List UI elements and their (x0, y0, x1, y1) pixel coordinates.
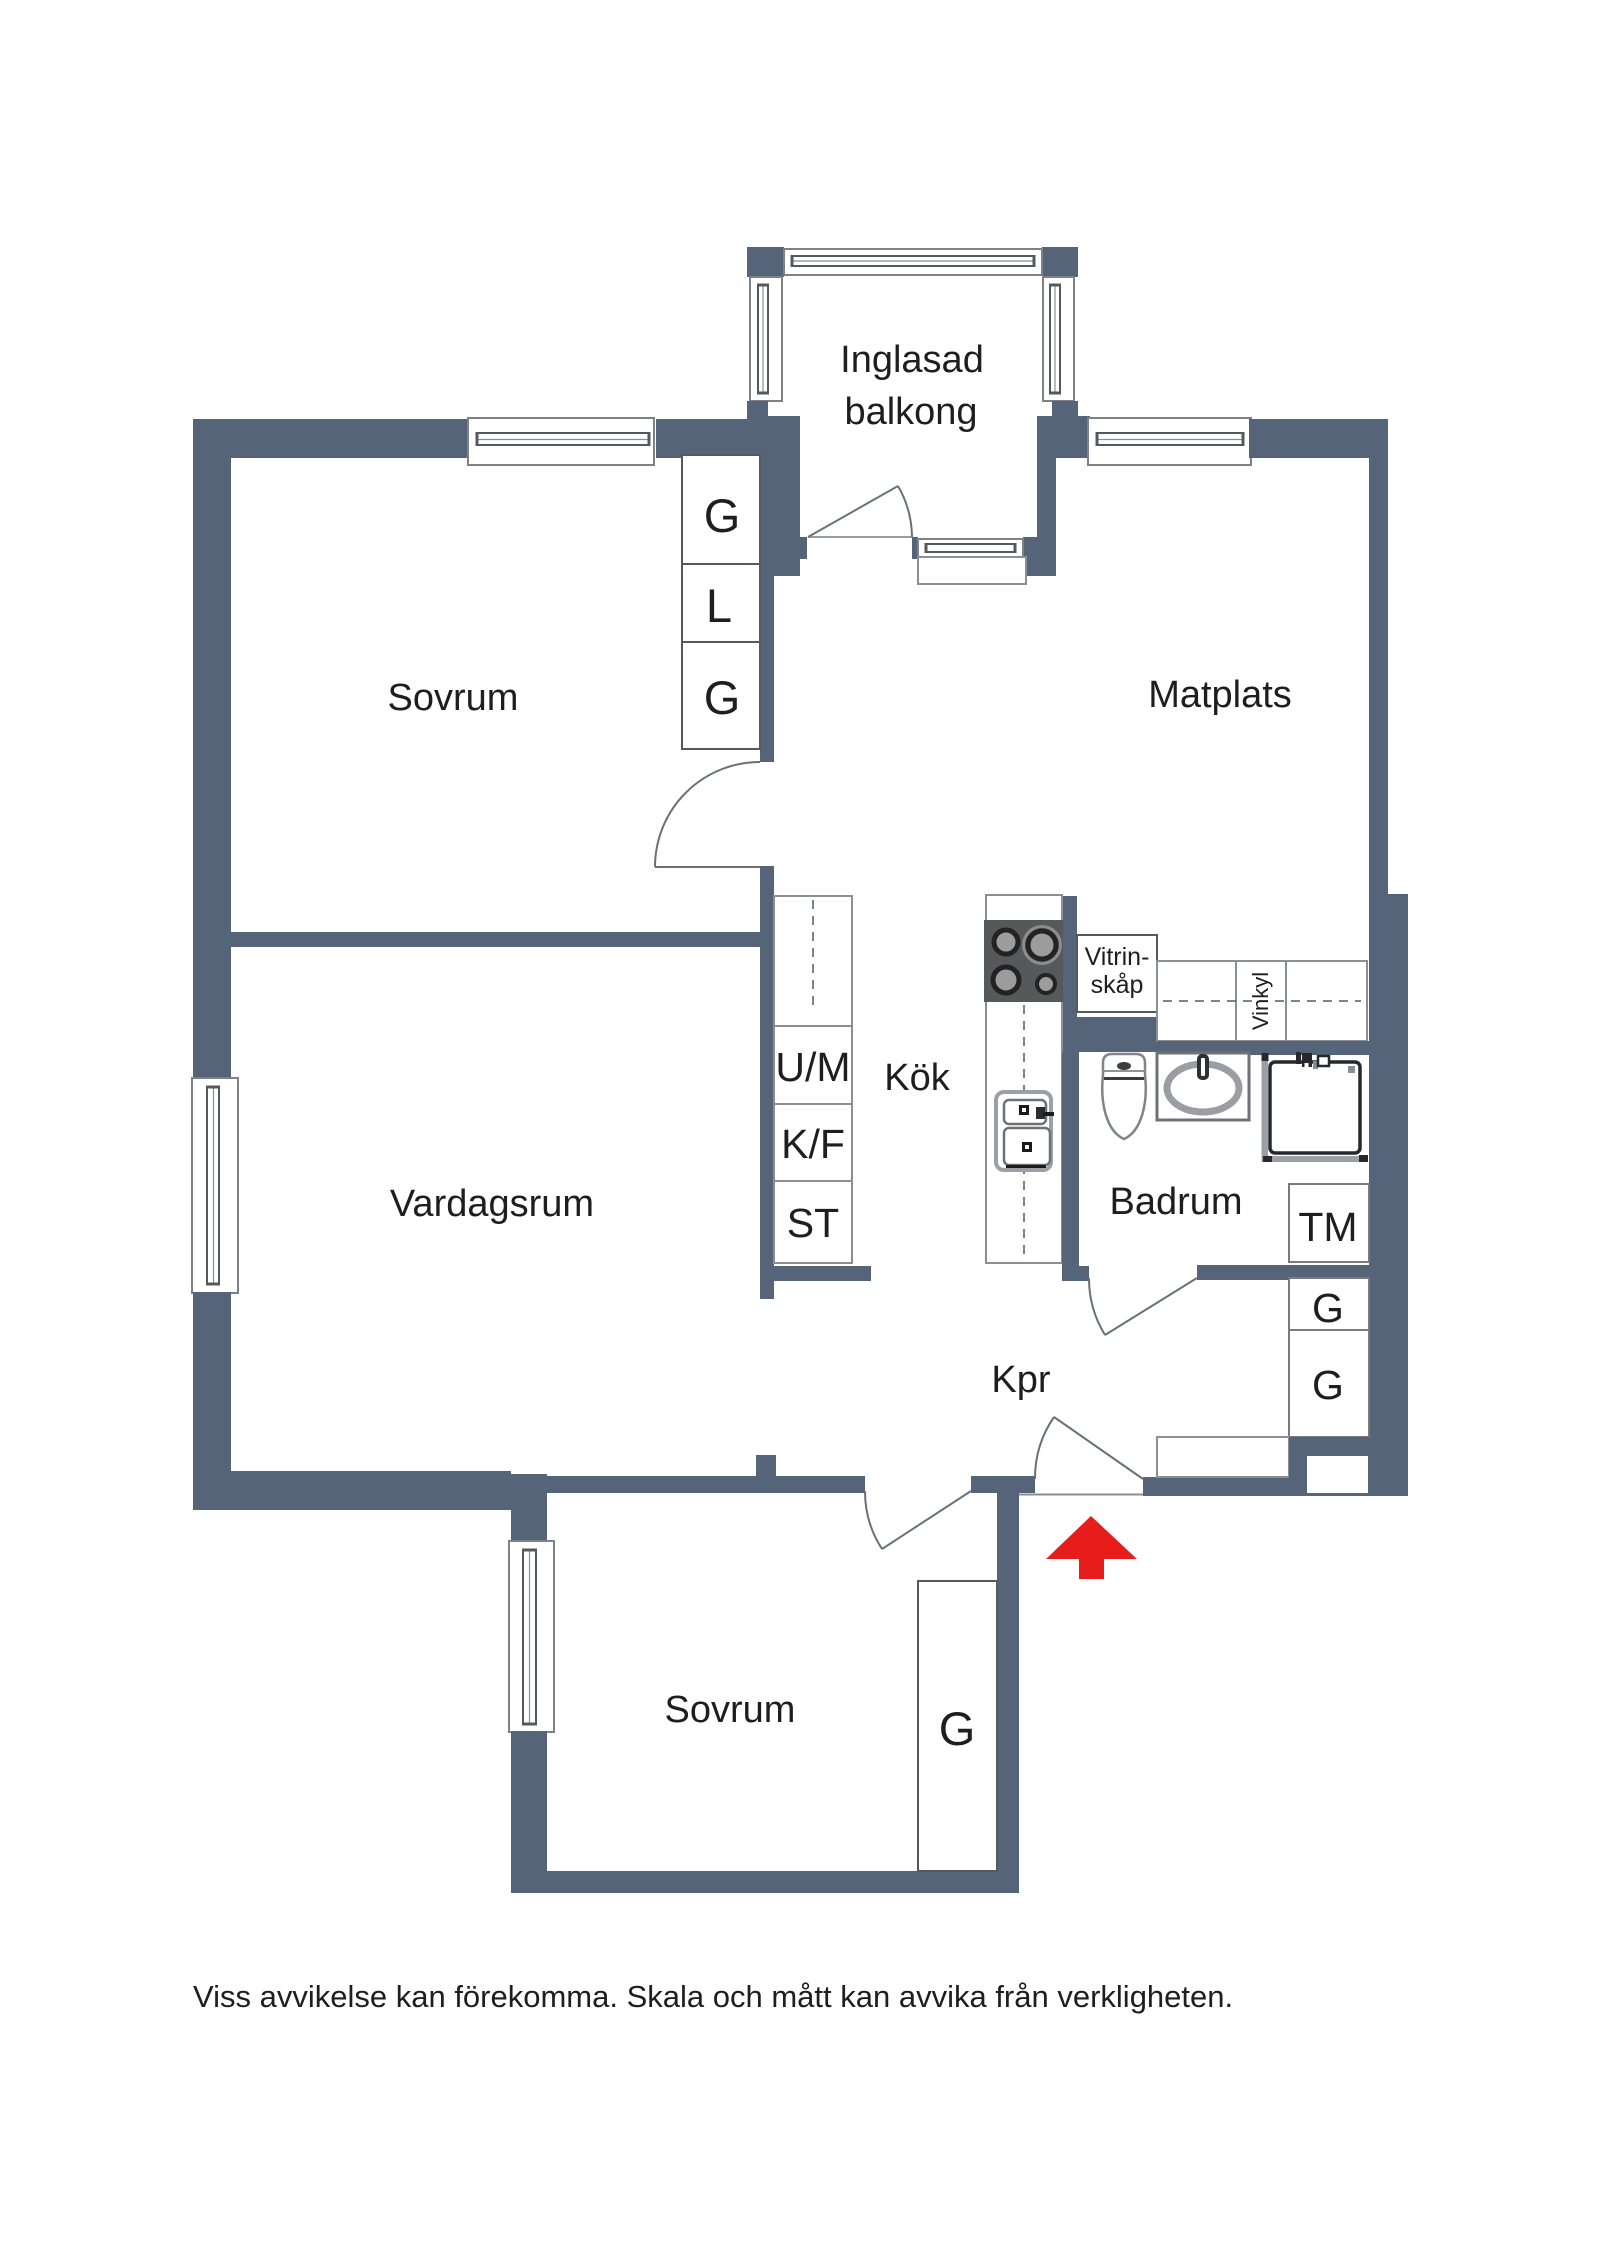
svg-text:Sovrum: Sovrum (665, 1689, 796, 1731)
svg-text:G: G (1312, 1285, 1344, 1331)
svg-text:K/F: K/F (781, 1121, 845, 1167)
svg-text:U/M: U/M (775, 1044, 850, 1090)
svg-text:L: L (706, 579, 732, 632)
svg-text:G: G (1312, 1362, 1344, 1408)
svg-text:G: G (939, 1702, 976, 1755)
svg-text:Vardagsrum: Vardagsrum (390, 1183, 594, 1225)
svg-text:Viss avvikelse kan förekomma.: Viss avvikelse kan förekomma. Skala och … (193, 1979, 1233, 2014)
svg-text:Kpr: Kpr (991, 1359, 1050, 1401)
svg-text:Sovrum: Sovrum (388, 677, 519, 719)
svg-text:balkong: balkong (844, 391, 977, 433)
svg-text:Kök: Kök (884, 1057, 950, 1099)
svg-text:Inglasad: Inglasad (840, 339, 984, 381)
svg-text:skåp: skåp (1091, 971, 1144, 999)
svg-text:Vinkyl: Vinkyl (1248, 972, 1273, 1030)
svg-text:Badrum: Badrum (1109, 1181, 1242, 1223)
svg-text:ST: ST (787, 1200, 839, 1246)
svg-text:Matplats: Matplats (1148, 674, 1292, 716)
svg-text:G: G (704, 671, 741, 724)
svg-text:G: G (704, 489, 741, 542)
svg-text:TM: TM (1298, 1204, 1357, 1250)
svg-text:Vitrin-: Vitrin- (1085, 943, 1150, 971)
